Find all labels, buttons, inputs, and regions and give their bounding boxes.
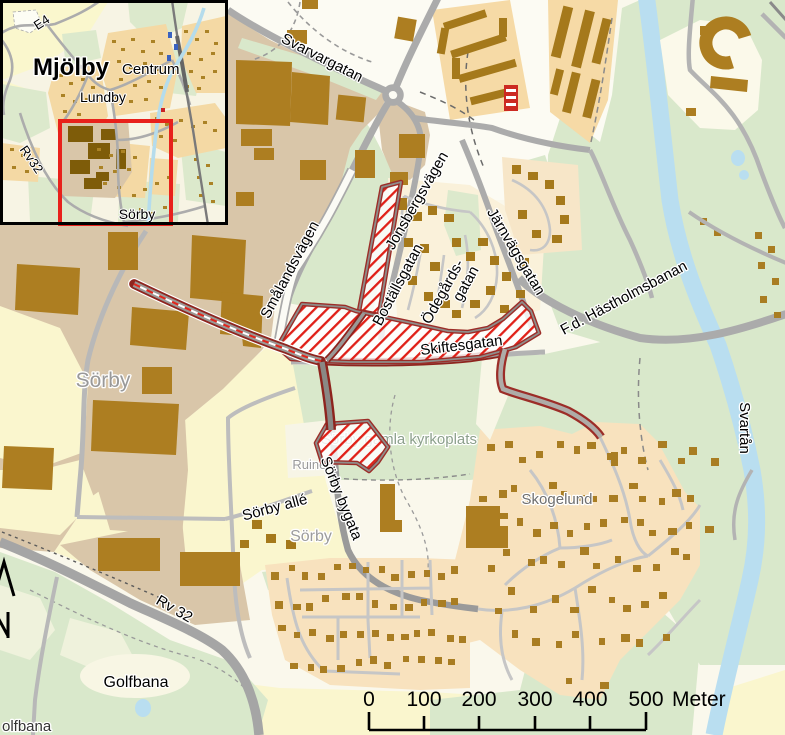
svg-text:500: 500 [628,688,663,711]
svg-text:Svartån: Svartån [736,402,753,454]
svg-text:Golfbana: Golfbana [104,674,169,691]
svg-text:Mjölby: Mjölby [33,54,110,81]
svg-text:Skogelund: Skogelund [522,491,593,508]
svg-text:olfbana: olfbana [2,718,52,735]
svg-text:Meter: Meter [672,688,726,711]
svg-text:Sörby: Sörby [290,528,332,545]
svg-text:100: 100 [406,688,441,711]
svg-text:400: 400 [572,688,607,711]
svg-text:300: 300 [517,688,552,711]
svg-text:0: 0 [363,688,375,711]
svg-text:200: 200 [461,688,496,711]
svg-text:Lundby: Lundby [80,89,126,105]
svg-text:Centrum: Centrum [122,61,180,78]
svg-text:Sörby: Sörby [76,369,131,392]
svg-text:Sörby: Sörby [119,206,156,222]
